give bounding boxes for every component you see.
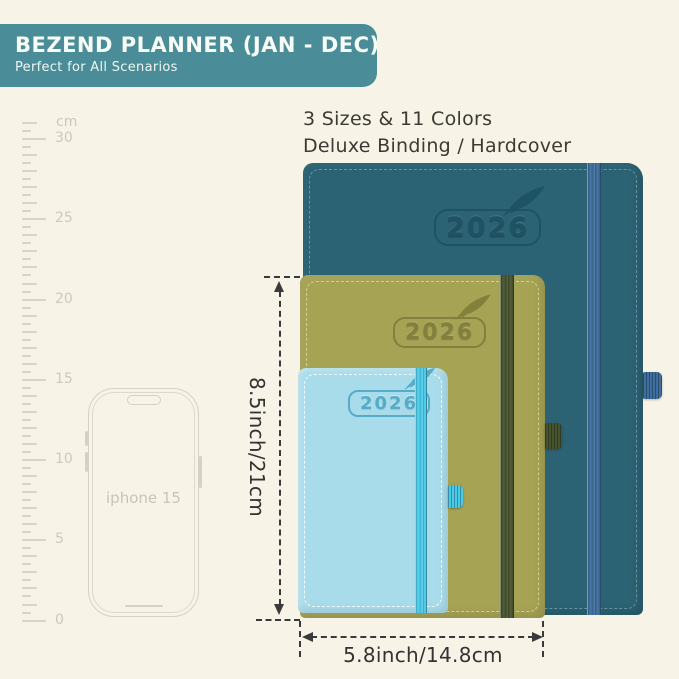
ruler-tick [22,274,31,276]
ruler-tick [22,363,37,365]
volume-up-button [85,431,88,446]
ruler-tick [22,154,37,156]
ruler-tick [22,146,31,148]
ruler-tick [22,387,31,389]
arrow-down-icon [274,604,284,615]
ruler-tick [22,379,46,381]
ruler-tick [22,604,37,606]
ruler-tick [22,395,37,397]
ruler-tick [22,515,31,517]
pen-loop [448,485,463,508]
power-button [199,456,202,488]
info-binding: Deluxe Binding / Hardcover [303,133,571,160]
elastic-band [587,163,601,615]
ruler-tick [22,130,31,132]
ruler-tick [22,555,37,557]
height-dimension-label: 8.5inch/21cm [245,377,269,517]
ruler-tick [22,250,37,252]
ruler-tick [22,531,31,533]
ruler-tick [22,443,37,445]
ruler-tick [22,299,46,301]
ruler-number: 15 [55,371,73,387]
ruler-tick [22,178,31,180]
year-label: 2026 [434,209,541,246]
ruler-tick [22,258,31,260]
ruler-tick [22,419,31,421]
product-size-diagram: BEZEND PLANNER (JAN - DEC) Perfect for A… [0,0,679,679]
ruler-tick [22,483,31,485]
ruler-tick [22,347,37,349]
ruler-number: 20 [55,291,73,307]
home-indicator [125,605,163,607]
ruler-tick [22,507,37,509]
ruler-tick [22,435,31,437]
info-sizes-colors: 3 Sizes & 11 Colors [303,106,571,133]
ruler-tick [22,218,46,220]
iphone-outline: iphone 15 [88,388,199,617]
ruler-tick [22,579,31,581]
volume-down-button [85,452,88,472]
ruler-tick [22,194,31,196]
ruler-tick [22,291,31,293]
ruler-tick [22,331,37,333]
ruler-tick [22,339,31,341]
dimension-extension-line [264,276,300,278]
ruler-tick [22,571,37,573]
pen-loop [643,372,662,399]
ruler-number: 25 [55,210,73,226]
ruler-tick [22,242,31,244]
ruler-tick [22,467,31,469]
arrow-right-icon [532,632,543,642]
ruler-tick [22,523,37,525]
dimension-extension-line [256,619,300,621]
pen-loop [545,423,562,449]
planner-small-blue: 2026 [298,368,448,613]
ruler-number: 10 [55,451,73,467]
ruler-tick [22,323,31,325]
ruler-tick [22,315,37,317]
ruler-tick [22,162,31,164]
ruler-tick [22,620,46,622]
ruler-tick [22,138,46,140]
ruler-tick [22,186,37,188]
dimension-line [311,636,534,638]
ruler-tick [22,547,31,549]
dimension-line [279,291,281,605]
ruler-tick [22,491,37,493]
ruler-tick [22,234,37,236]
ruler-tick [22,475,37,477]
ruler-tick [22,459,46,461]
ruler-tick [22,307,31,309]
ruler-tick [22,170,37,172]
ruler-tick [22,539,46,541]
ruler-tick [22,499,31,501]
cover-logo: 2026 [434,209,541,246]
ruler-tick [22,563,31,565]
iphone-label: iphone 15 [89,489,198,507]
ruler-tick [22,411,37,413]
dynamic-island [127,395,161,405]
ruler-tick [22,210,31,212]
ruler-number: 0 [55,612,64,628]
ruler-tick [22,371,31,373]
ruler-tick [22,283,37,285]
dimension-extension-line [299,621,301,657]
ruler-tick [22,355,31,357]
ruler-tick [22,587,37,589]
ruler-unit-label: cm [56,114,77,130]
elastic-band [415,368,427,613]
ruler-tick [22,612,31,614]
cover-logo: 2026 [393,317,486,348]
ruler-tick [22,226,31,228]
ruler-tick [22,202,37,204]
ruler-tick [22,266,37,268]
ruler-tick [22,122,37,124]
product-info: 3 Sizes & 11 Colors Deluxe Binding / Har… [303,106,571,160]
ruler-number: 5 [55,531,64,547]
ruler-tick [22,403,31,405]
year-label: 2026 [393,317,486,348]
ruler-tick [22,595,31,597]
width-dimension-label: 5.8inch/14.8cm [313,643,533,667]
ruler-tick [22,451,31,453]
ruler-tick [22,427,37,429]
elastic-band [500,275,514,618]
ruler-number: 30 [55,130,73,146]
